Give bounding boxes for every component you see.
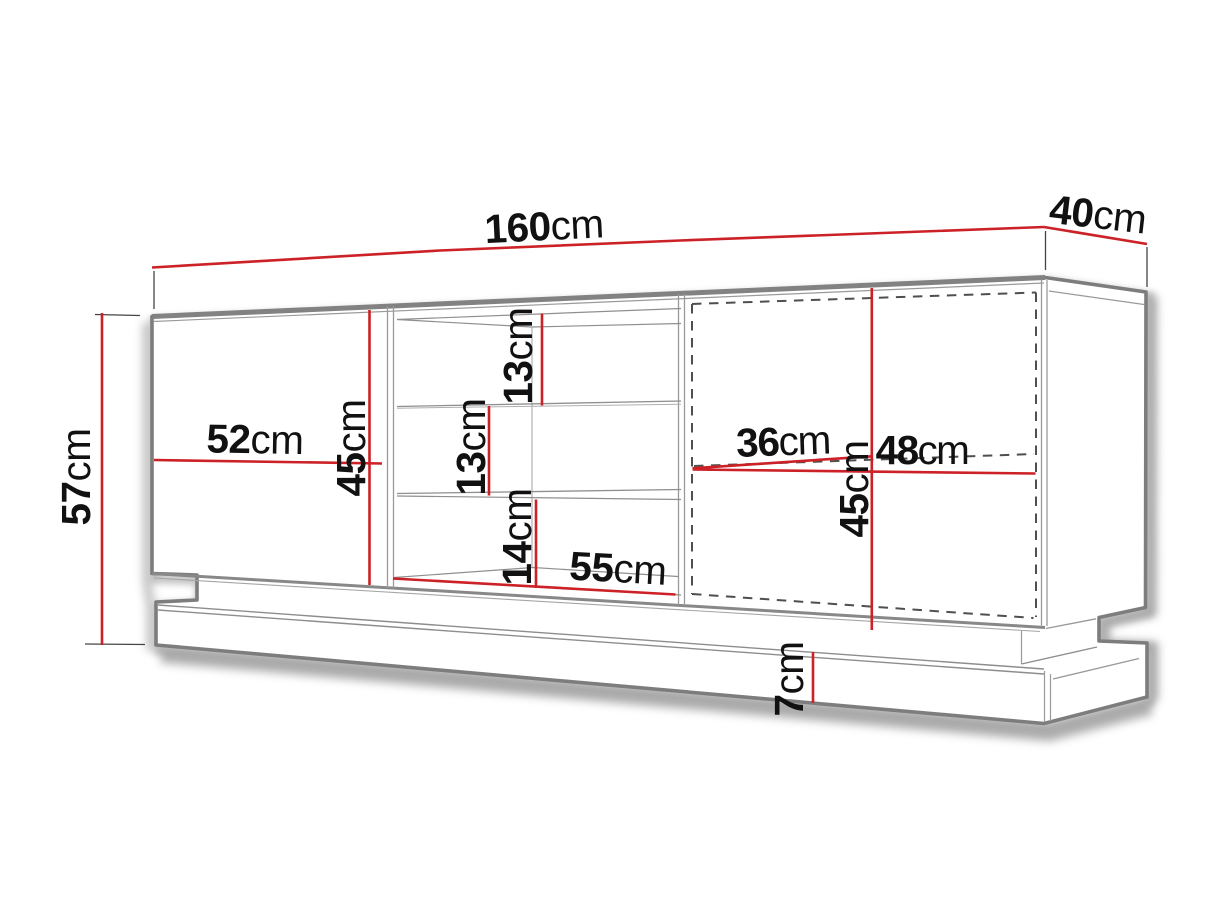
svg-text:48cm: 48cm: [876, 427, 969, 473]
svg-text:57cm: 57cm: [53, 428, 99, 525]
svg-text:160cm: 160cm: [483, 200, 604, 252]
svg-text:14cm: 14cm: [494, 488, 540, 585]
svg-text:40cm: 40cm: [1047, 186, 1149, 243]
svg-text:13cm: 13cm: [448, 398, 494, 495]
svg-text:45cm: 45cm: [831, 440, 877, 537]
svg-text:45cm: 45cm: [328, 399, 374, 496]
svg-text:55cm: 55cm: [568, 543, 667, 594]
svg-text:13cm: 13cm: [495, 307, 541, 404]
svg-text:7cm: 7cm: [766, 641, 812, 716]
svg-text:36cm: 36cm: [735, 417, 830, 466]
svg-text:52cm: 52cm: [206, 415, 304, 463]
